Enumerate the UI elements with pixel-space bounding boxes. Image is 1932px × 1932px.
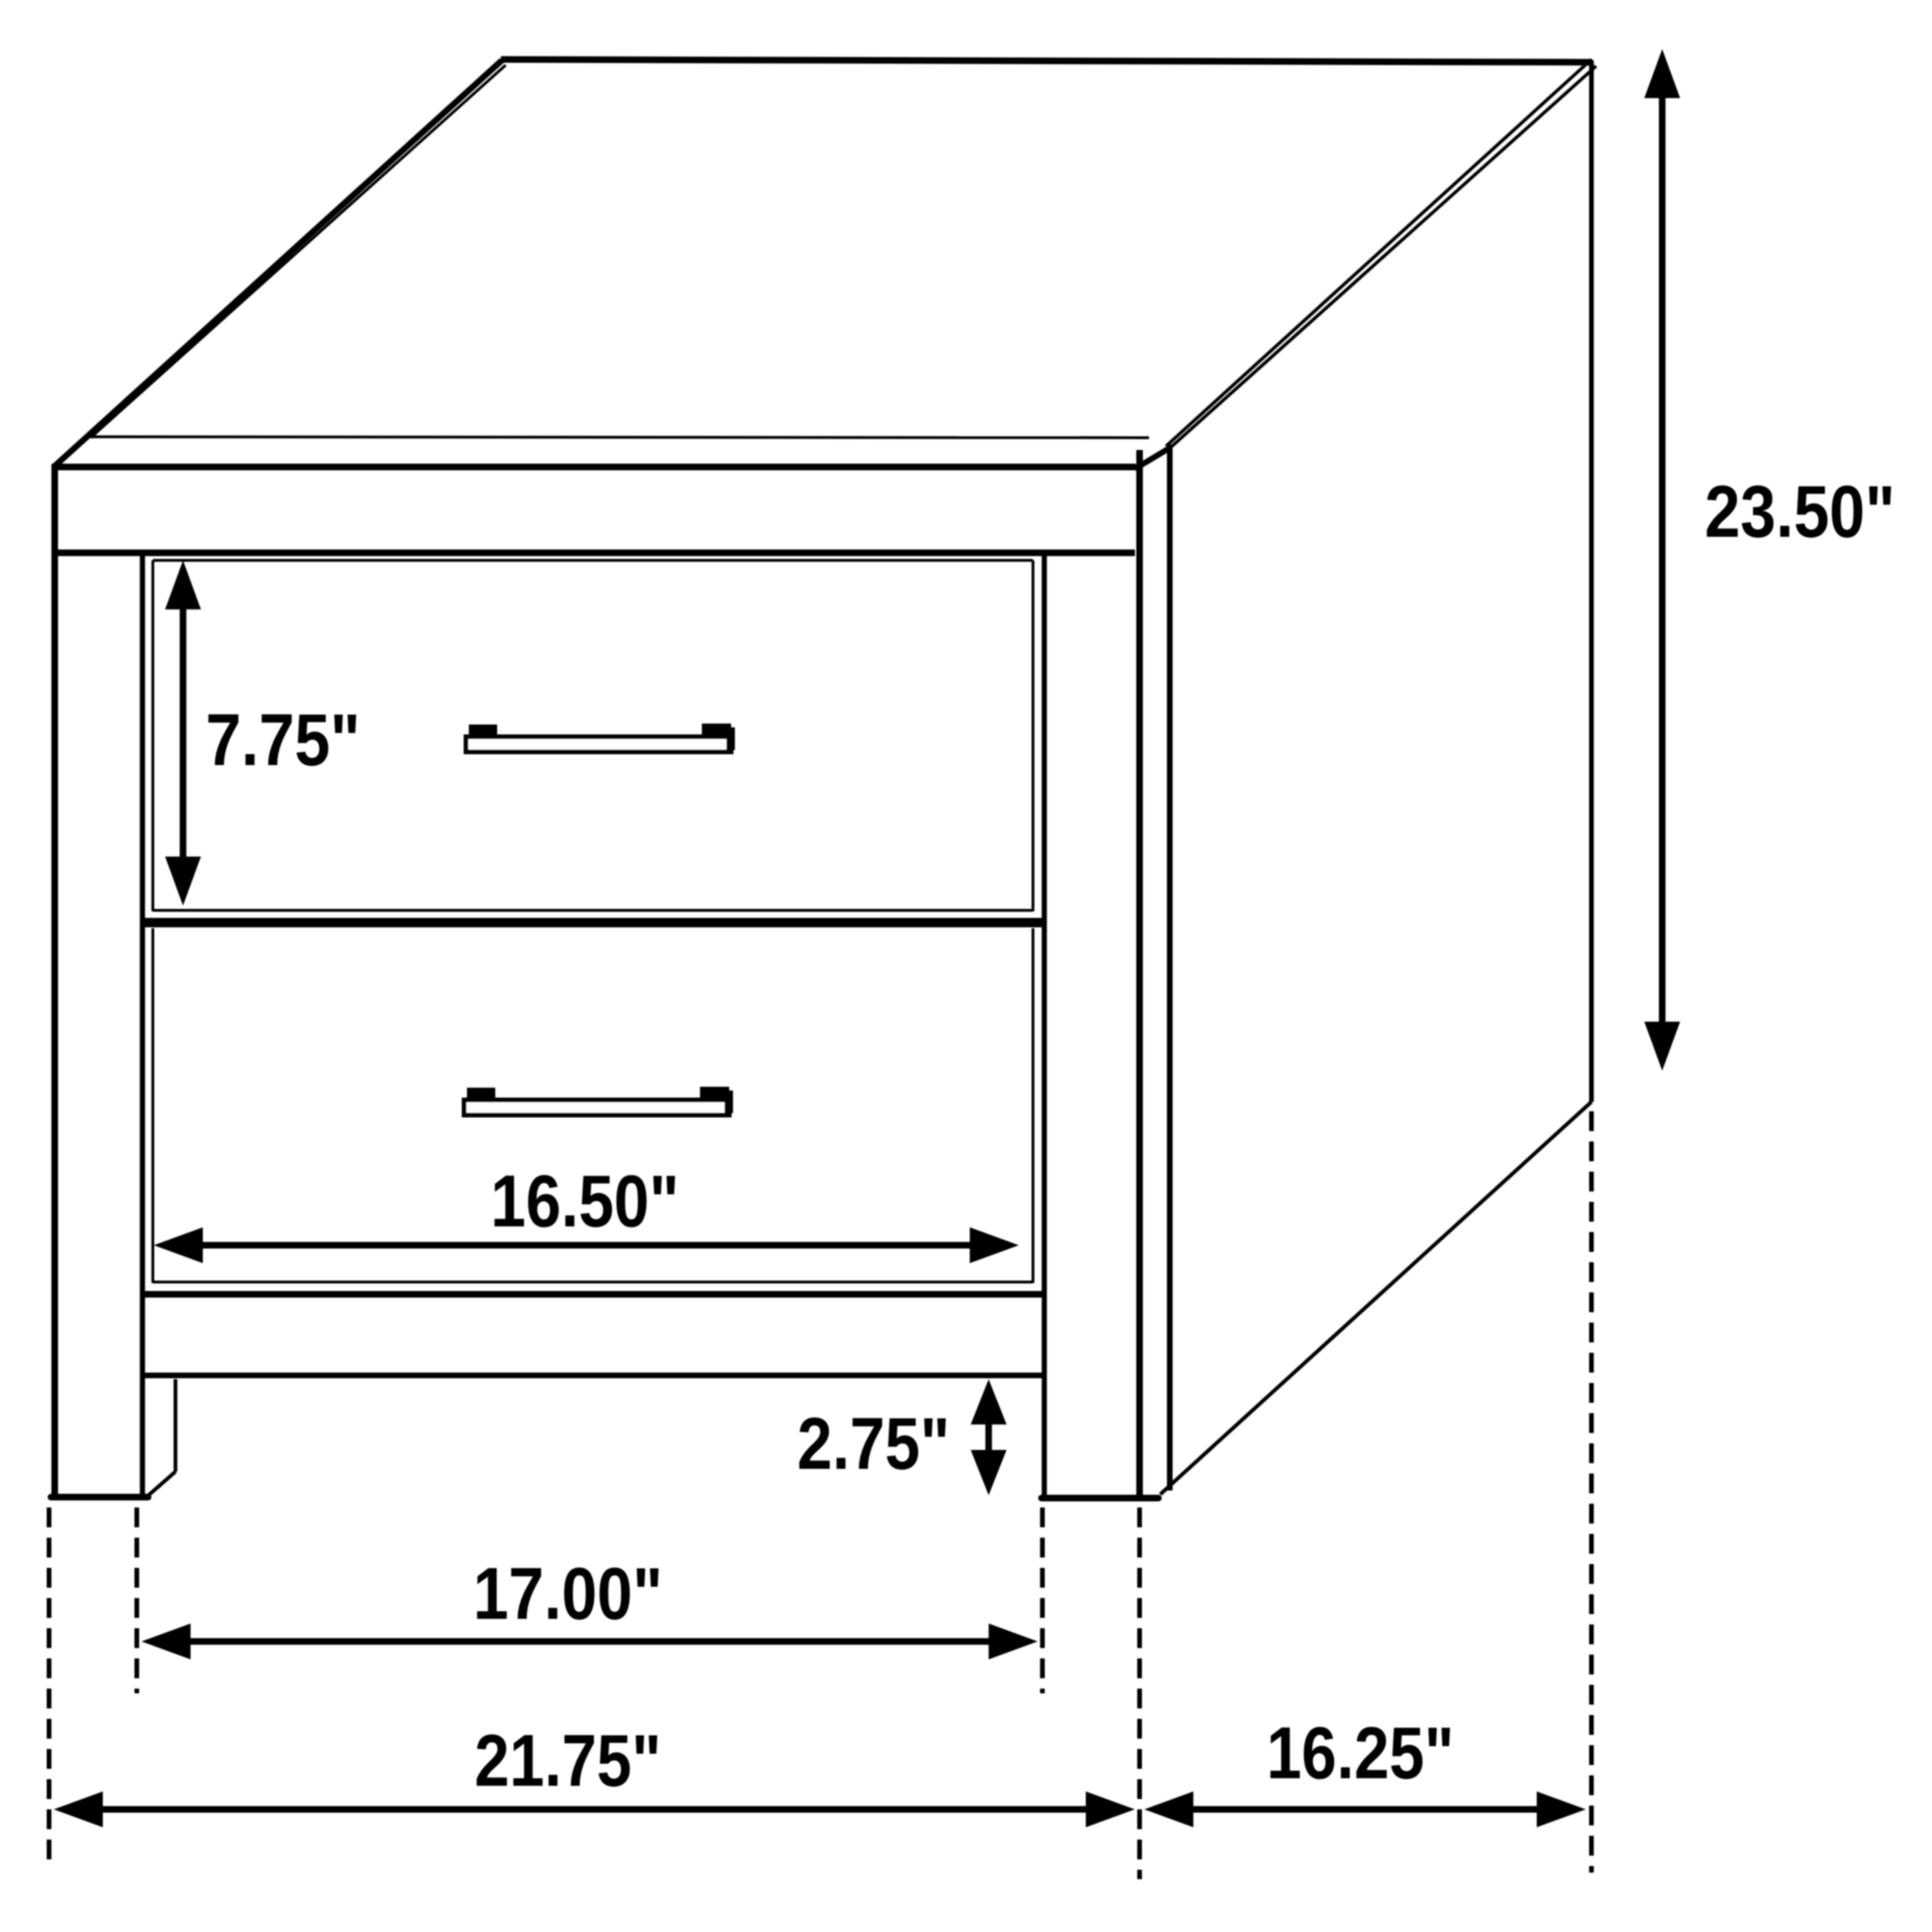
svg-text:21.75": 21.75" bbox=[475, 1719, 661, 1802]
svg-text:16.25": 16.25" bbox=[1267, 1711, 1455, 1794]
svg-text:23.50": 23.50" bbox=[1705, 470, 1895, 553]
svg-text:16.50": 16.50" bbox=[491, 1159, 679, 1242]
svg-text:2.75": 2.75" bbox=[797, 1402, 950, 1485]
svg-text:7.75": 7.75" bbox=[206, 698, 360, 781]
svg-text:17.00": 17.00" bbox=[474, 1552, 663, 1635]
